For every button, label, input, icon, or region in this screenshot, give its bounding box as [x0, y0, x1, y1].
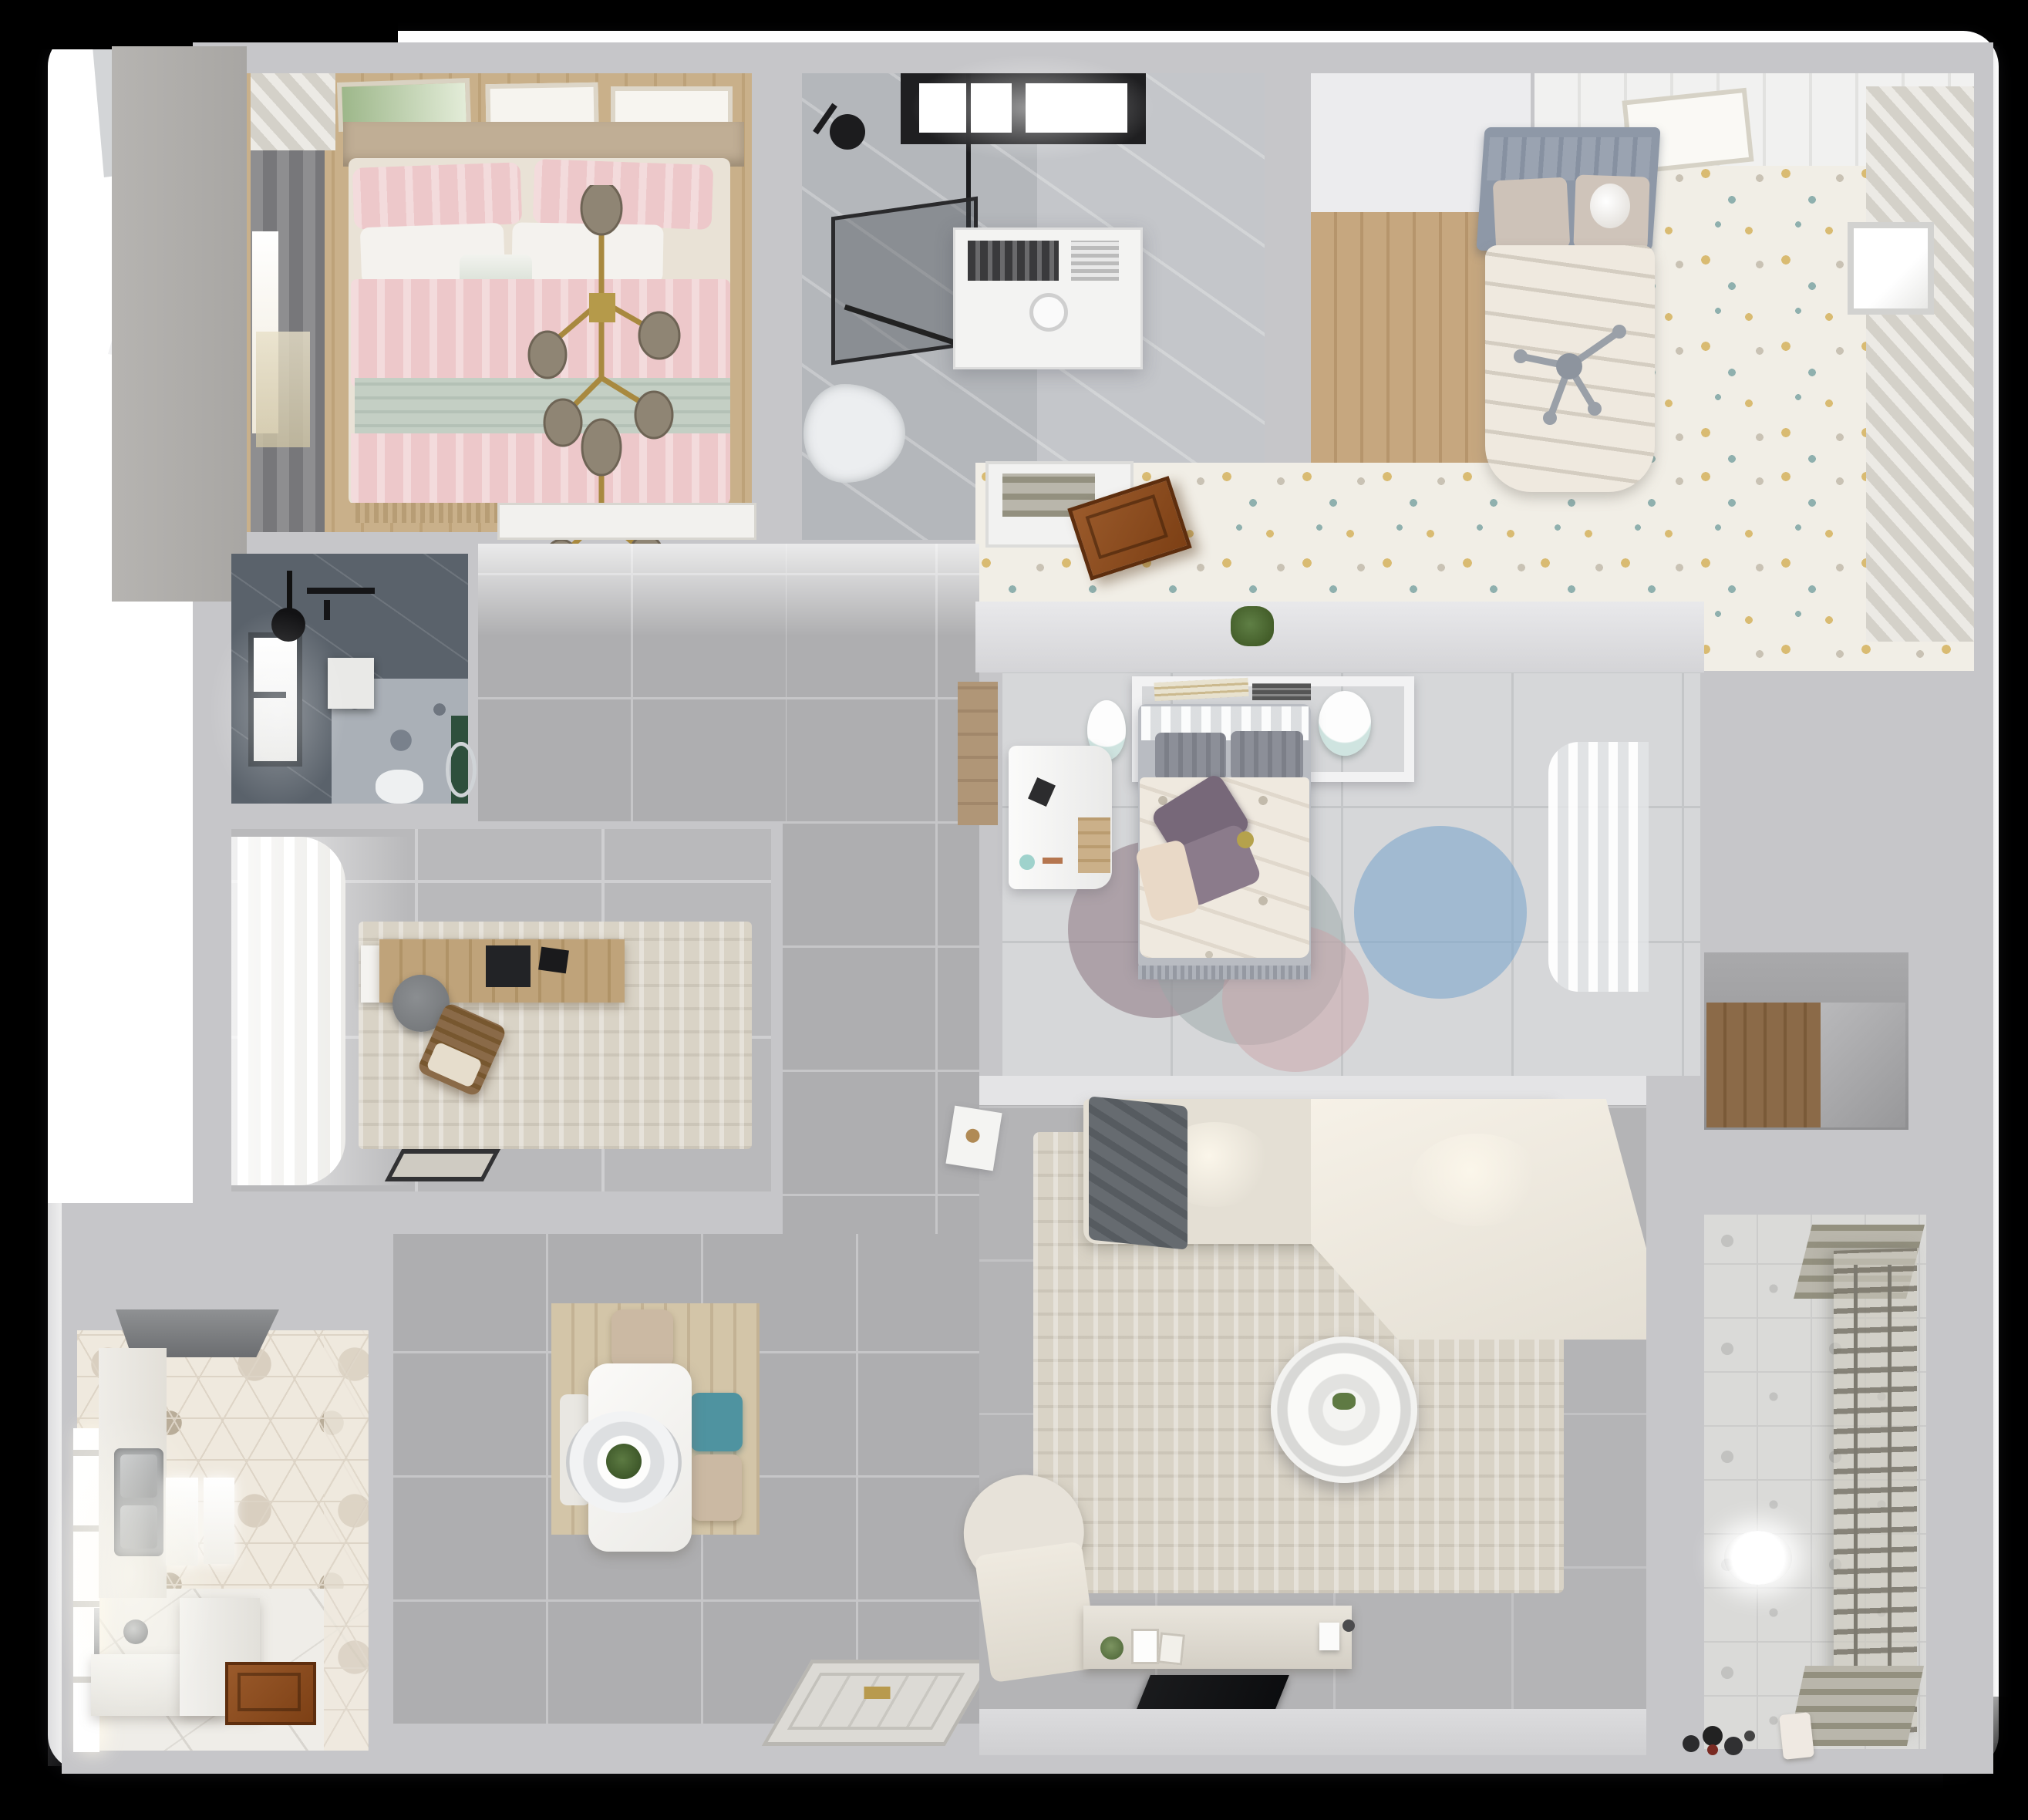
washer-door: [1029, 293, 1068, 332]
shower-valve-bar: [307, 588, 375, 594]
armchair-seat: [974, 1541, 1099, 1683]
console-frame: [1157, 1632, 1185, 1665]
flat-tv: [1137, 1675, 1289, 1709]
roman-blind: [251, 73, 335, 150]
round-coffee-table: [1271, 1336, 1417, 1483]
floorplan-render: [0, 0, 2028, 1820]
shower-valve: [324, 600, 330, 620]
dining-chair-beige2: [691, 1454, 742, 1521]
toilet-small: [376, 770, 423, 804]
desk-drawer: [1078, 817, 1110, 873]
window-greenery: [256, 332, 310, 447]
gray-pillow: [1155, 733, 1226, 780]
table-plant: [606, 1444, 642, 1479]
beige-pillow: [1493, 177, 1571, 252]
kitchen-hex-wall-band: [324, 1330, 369, 1751]
washer-controls: [968, 241, 1059, 281]
sphere-lamp: [1590, 184, 1630, 228]
console-cube: [1319, 1623, 1339, 1650]
bed-fringe: [1138, 966, 1311, 979]
round-mirror-edge: [446, 742, 477, 797]
kitchen-wood-door: [225, 1662, 316, 1725]
balcony-ceiling-light: [1724, 1531, 1792, 1585]
ledge-plant: [1231, 606, 1274, 646]
mat-pattern: [787, 1673, 965, 1730]
round-stool-mint: [1319, 691, 1371, 756]
floor-toys: [1679, 1721, 1764, 1761]
console-knob: [1342, 1619, 1355, 1632]
hallway-light: [478, 544, 979, 636]
side-table-decor: [965, 1127, 981, 1144]
drying-rack: [1834, 1248, 1917, 1735]
window-niche: [1848, 222, 1934, 315]
door-panel: [1086, 494, 1168, 559]
mat-handles: [864, 1687, 891, 1699]
washer-panel: [1071, 241, 1119, 281]
master-sheer-curtain: [1548, 742, 1649, 992]
dining-chair-teal: [690, 1393, 743, 1451]
gold-accent: [1237, 831, 1254, 848]
rack-rail: [1888, 1265, 1892, 1727]
door-panel: [237, 1673, 301, 1711]
tv-console: [1083, 1606, 1352, 1669]
sofa-lit-cushion: [1411, 1134, 1542, 1226]
throw-blanket: [1089, 1096, 1187, 1249]
slatted-wardrobe: [1866, 86, 1974, 642]
side-table: [945, 1106, 1002, 1171]
light-bloom: [46, 1411, 216, 1735]
rack-rail: [1854, 1265, 1858, 1727]
console-frame: [1131, 1629, 1159, 1664]
shower-head: [830, 114, 865, 150]
gray-pillow: [1231, 731, 1303, 780]
niche-wood-shelf: [1706, 1003, 1821, 1127]
master-top-ledge: [975, 602, 1704, 672]
dark-books: [1252, 683, 1311, 700]
ceiling-fan: [1504, 301, 1635, 432]
mint-cup: [1019, 854, 1035, 870]
wood-wall-panel: [958, 682, 998, 825]
towel: [1779, 1712, 1814, 1760]
dining-chair-beige: [611, 1309, 673, 1368]
desk-frame: [538, 947, 569, 974]
exterior-bay-wall: [112, 46, 247, 602]
rug-circle-blue: [1354, 826, 1527, 999]
table-sprig: [1332, 1393, 1356, 1410]
washing-machine: [953, 228, 1143, 369]
study-doormat: [385, 1149, 500, 1181]
copper-item: [1043, 858, 1063, 864]
light-bloom: [910, 54, 1157, 162]
console-green-plate: [1100, 1636, 1123, 1660]
living-bottom-wall: [979, 1709, 1646, 1755]
niche-gray-side: [1821, 1003, 1905, 1127]
headboard-tufting: [1487, 137, 1652, 180]
light-bloom: [208, 609, 347, 810]
laptop: [486, 945, 531, 987]
dresser: [497, 503, 756, 540]
